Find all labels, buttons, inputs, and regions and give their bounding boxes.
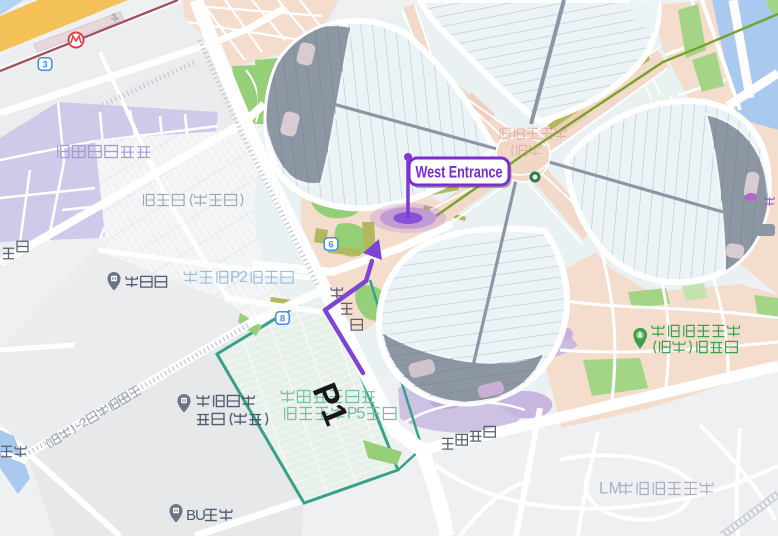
svg-text:M: M [609, 480, 622, 498]
svg-text:5: 5 [356, 405, 365, 423]
svg-text:U: U [195, 507, 206, 524]
svg-text:2: 2 [239, 269, 248, 286]
svg-text:8: 8 [280, 313, 285, 324]
svg-text:3: 3 [42, 59, 47, 70]
svg-text:L: L [599, 480, 608, 498]
svg-text:West Entrance: West Entrance [416, 163, 503, 182]
svg-text:6: 6 [328, 239, 333, 250]
